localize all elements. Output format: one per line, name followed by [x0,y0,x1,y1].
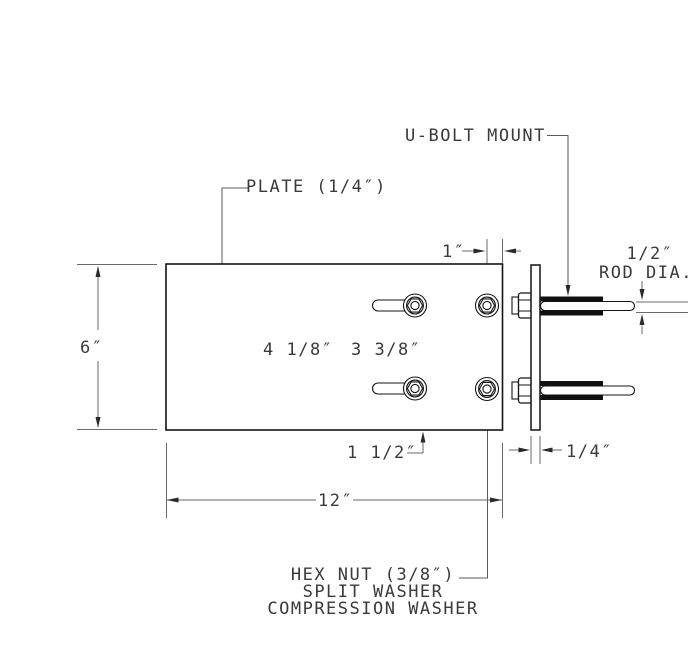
u-bolt-rod-bottom [541,381,635,400]
u-bolt-rod-top [541,297,635,316]
thread-bottom [541,395,604,400]
washer-assembly-bottom-left [404,377,427,400]
rod [541,386,635,395]
bolt-hole [411,301,419,309]
arrowhead-right [519,448,531,453]
arrowhead-right [474,249,486,254]
rod-dia-label-line2: ROD DIA. [599,263,691,283]
rod-dia-label-line1: 1/2″ [627,244,674,264]
washer-assembly-top-left [404,294,427,317]
side-hex-nut [519,378,533,403]
plate-plan-view [166,264,503,430]
u-bolt-mount-side-view [512,265,635,430]
arrowhead-left [504,249,516,254]
u-bolt-mount-label: U-BOLT MOUNT [405,126,546,146]
hardware-label-line3: COMPRESSION WASHER [267,599,478,619]
bottom-offset-dimension-text: 1 1/2″ [347,443,417,463]
arrowhead-right [490,498,502,503]
u-bolt-mount-drawing: U-BOLT MOUNT PLATE (1/4″) 1/2″ ROD DIA. … [0,0,691,663]
arrowhead-up [96,266,101,277]
side-washer [512,297,519,314]
hole-spacing-outer-dimension-text: 4 1/8″ [263,340,333,360]
thickness-dimension-text: 1/4″ [566,442,613,462]
hole-spacing-inner-dimension-text: 3 3/8″ [351,340,421,360]
arrowhead-left [541,448,553,453]
plate-outline [166,264,503,430]
side-washer [512,382,519,399]
thread-bottom [541,311,604,316]
side-nut-bottom [512,378,532,403]
arrowhead-down [96,417,101,428]
washer-assembly-bottom-right [476,378,499,401]
rod-dia-dimension-lines [636,281,688,334]
edge-offset-dimension-text: 1″ [442,242,465,262]
thread-top [541,381,604,386]
mount-plate-side [531,265,540,430]
u-bolt-leader-line [547,136,568,287]
side-hex-nut [519,293,533,318]
bolt-hole [483,301,491,309]
arrowhead-up [421,432,426,443]
thread-top [541,297,604,302]
width-dimension-text: 12″ [318,491,353,511]
rod [541,302,635,311]
thickness-dimension-lines [509,436,562,464]
height-dimension-text: 6″ [80,338,103,358]
plate-label: PLATE (1/4″) [246,177,387,197]
bolt-hole [483,385,491,393]
rod-dia-arrowhead-down [640,289,645,300]
arrowhead-left [167,498,179,503]
rod-dia-arrowhead-up [640,314,645,325]
washer-assembly-top-right [476,294,499,317]
bolt-hole [411,384,419,392]
drawing-canvas: U-BOLT MOUNT PLATE (1/4″) 1/2″ ROD DIA. … [0,0,691,663]
side-nut-top [512,293,532,318]
u-bolt-leader-arrowhead [566,285,571,296]
